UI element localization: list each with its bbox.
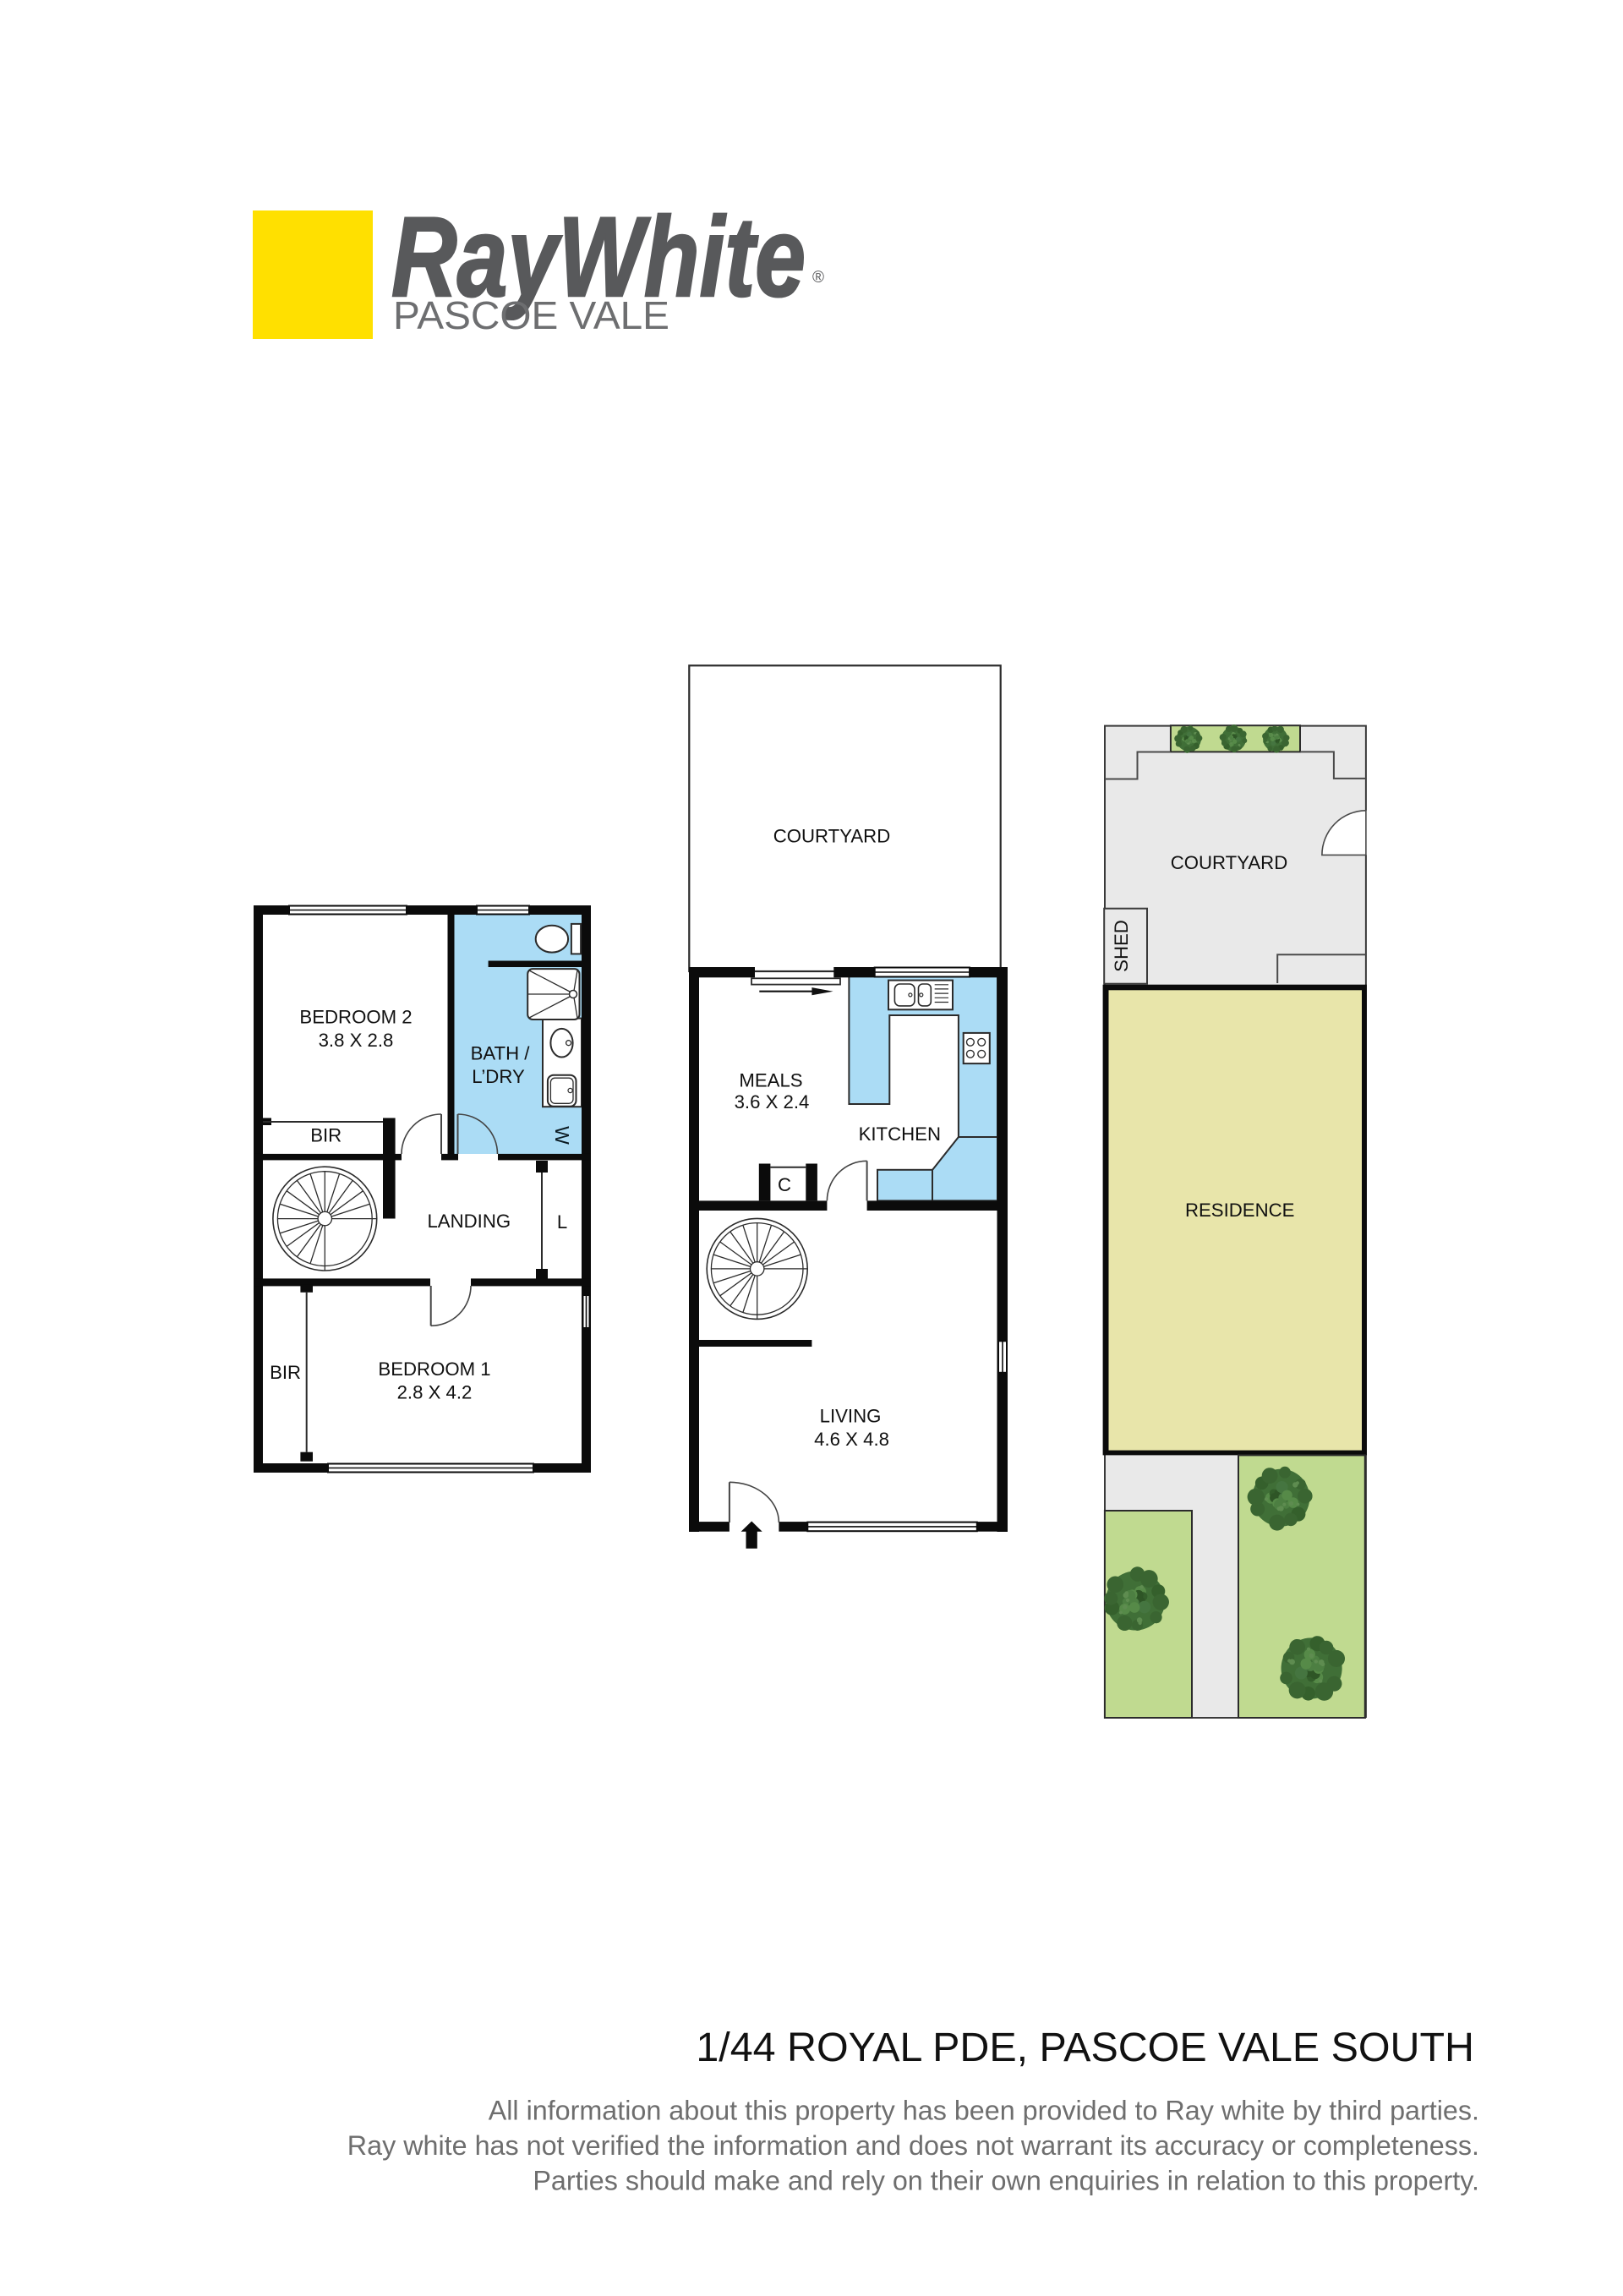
- svg-text:L: L: [557, 1211, 567, 1233]
- svg-text:L’DRY: L’DRY: [472, 1066, 525, 1087]
- svg-text:BIR: BIR: [310, 1125, 342, 1146]
- svg-text:2.8 X 4.2: 2.8 X 4.2: [397, 1382, 473, 1403]
- svg-text:LIVING: LIVING: [820, 1405, 882, 1426]
- svg-text:RESIDENCE: RESIDENCE: [1185, 1200, 1294, 1221]
- svg-text:BATH /: BATH /: [471, 1043, 531, 1064]
- svg-text:LANDING: LANDING: [427, 1211, 511, 1232]
- svg-text:COURTYARD: COURTYARD: [773, 826, 890, 847]
- svg-text:1/44 ROYAL PDE, PASCOE VALE SO: 1/44 ROYAL PDE, PASCOE VALE SOUTH: [696, 2025, 1474, 2070]
- svg-text:®: ®: [812, 269, 824, 287]
- svg-text:All information about this pro: All information about this property has …: [489, 2096, 1479, 2126]
- svg-text:MEALS: MEALS: [739, 1069, 802, 1091]
- svg-text:C: C: [778, 1174, 791, 1195]
- svg-text:3.8 X 2.8: 3.8 X 2.8: [319, 1030, 394, 1051]
- svg-text:Ray white has not verified the: Ray white has not verified the informati…: [347, 2130, 1479, 2161]
- svg-text:4.6 X 4.8: 4.6 X 4.8: [814, 1429, 889, 1450]
- svg-text:BIR: BIR: [270, 1362, 301, 1383]
- svg-text:BEDROOM 2: BEDROOM 2: [299, 1007, 412, 1028]
- svg-text:PASCOE VALE: PASCOE VALE: [393, 293, 669, 337]
- svg-text:3.6 X 2.4: 3.6 X 2.4: [735, 1091, 810, 1112]
- svg-text:Parties should make and rely o: Parties should make and rely on their ow…: [533, 2165, 1479, 2195]
- svg-text:COURTYARD: COURTYARD: [1171, 852, 1287, 873]
- svg-text:W: W: [551, 1126, 573, 1145]
- svg-text:BEDROOM 1: BEDROOM 1: [378, 1358, 490, 1380]
- svg-text:KITCHEN: KITCHEN: [859, 1123, 941, 1145]
- svg-text:SHED: SHED: [1111, 920, 1132, 972]
